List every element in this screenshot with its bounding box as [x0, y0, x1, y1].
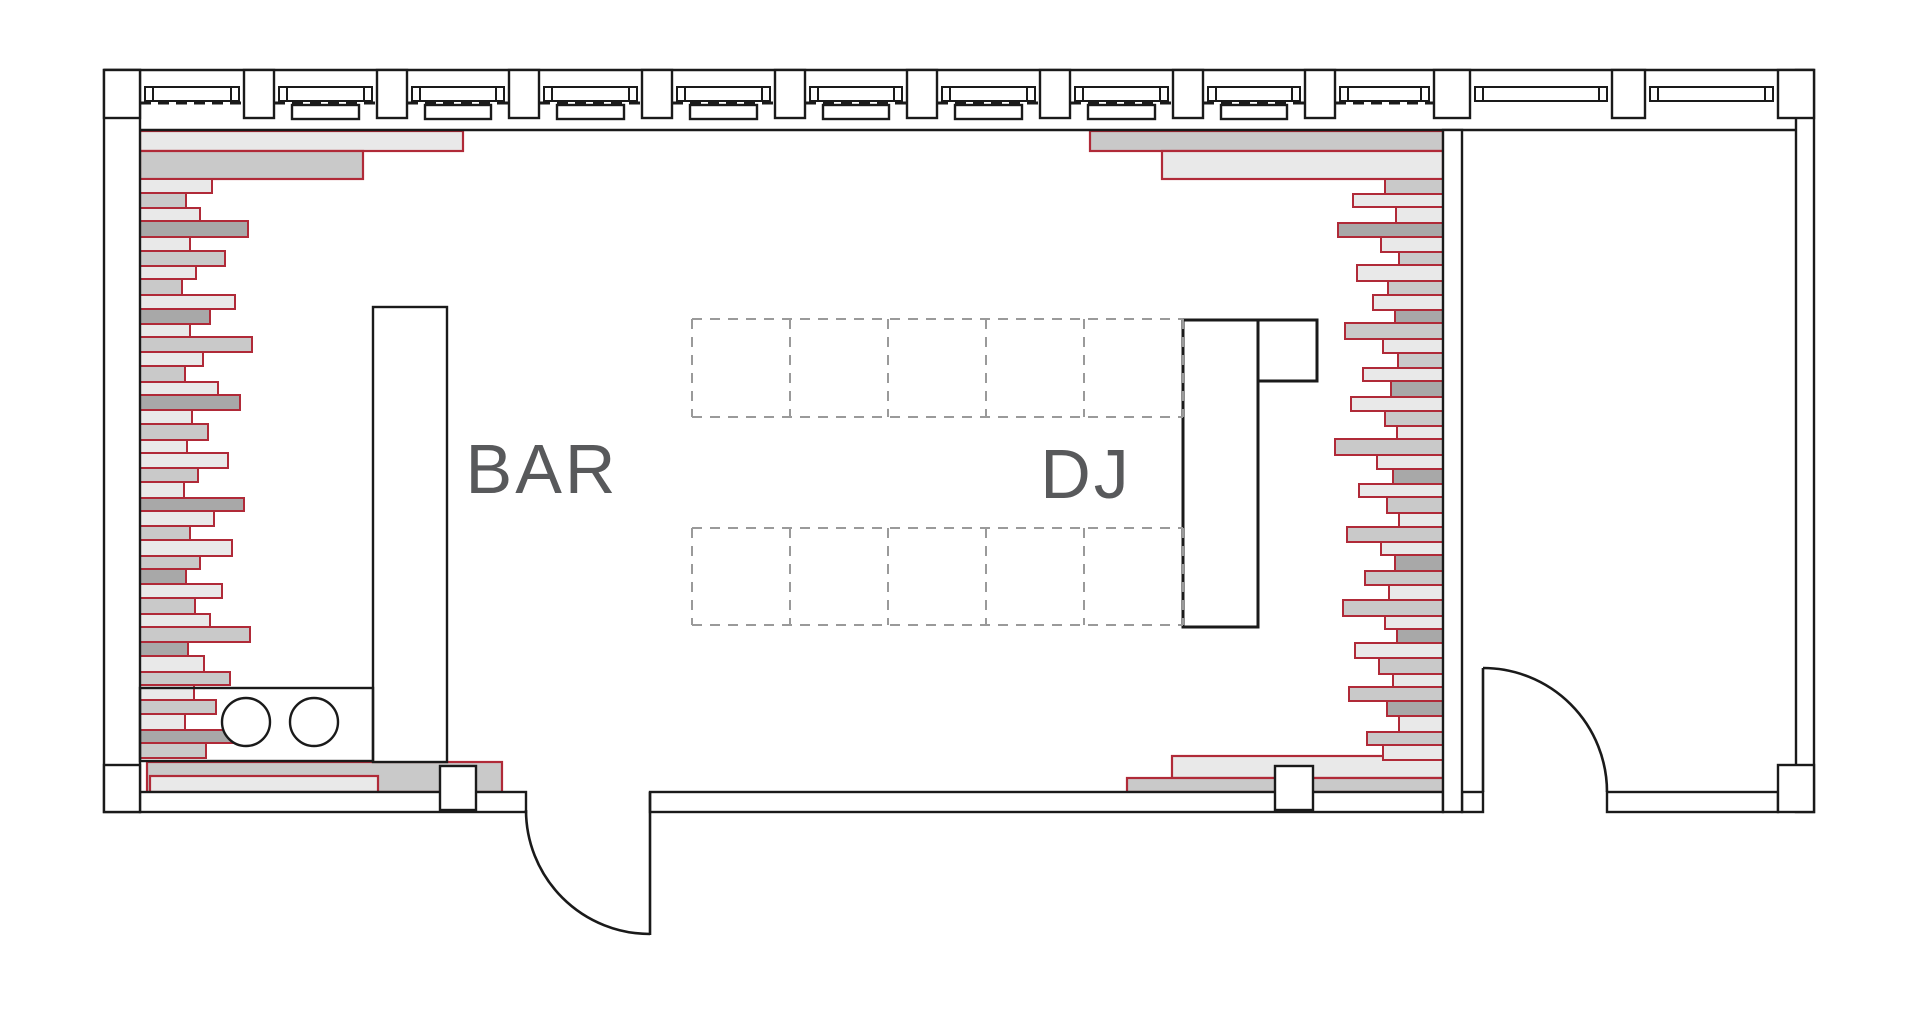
right-wall-panel-strip [1357, 265, 1443, 281]
right-wall-panel-strip [1347, 527, 1443, 542]
left-wall-panel-strip [140, 352, 203, 366]
right-wall-panel-strip [1385, 411, 1443, 426]
left-wall-panel-strip [140, 598, 195, 614]
left-wall-panel-strip [140, 221, 248, 237]
radiator [1088, 105, 1155, 119]
left-wall-panel-strip [140, 179, 212, 193]
right-wall-panel-strip [1379, 658, 1443, 674]
left-wall-panel-strip [140, 714, 185, 730]
left-wall-panel-strip [140, 556, 200, 569]
right-wall-panel-strip [1388, 281, 1443, 295]
panel-slab [140, 151, 363, 179]
sink-basin [290, 698, 338, 746]
left-wall-panel-strip [140, 584, 222, 598]
right-wall-panel-strip [1373, 295, 1443, 310]
window-frame [412, 87, 504, 101]
left-wall-panel-strip [140, 468, 198, 482]
left-wall-panel-strip [140, 237, 190, 251]
sink-basin [222, 698, 270, 746]
left-wall-panel-strip [140, 208, 200, 221]
left-wall-panel-strip [140, 453, 228, 468]
furniture [140, 307, 1317, 762]
bottom-wall-segment [1607, 792, 1778, 812]
left-wall-panel-strip [140, 395, 240, 410]
corner-column [104, 765, 140, 812]
left-wall-panel-strip [140, 627, 250, 642]
left-wall [104, 70, 140, 812]
right-wall-panel-strip [1395, 310, 1443, 323]
left-wall-panel-strip [140, 642, 188, 656]
back-room-door-swing-arc [1483, 668, 1607, 792]
right-wall-panel-strip [1335, 439, 1443, 455]
right-wall [1796, 70, 1814, 812]
right-wall-panel-strip [1351, 397, 1443, 411]
right-wall-panel-strip [1353, 194, 1443, 207]
left-wall-panel-strip [140, 656, 204, 672]
pilaster-column [642, 70, 672, 118]
right-wall-panel-strip [1383, 745, 1443, 760]
window-frame [1208, 87, 1300, 101]
floor-plan-canvas: BARDJ [0, 0, 1920, 1010]
right-wall-panel-strip [1399, 513, 1443, 527]
right-wall-panel-strip [1381, 237, 1443, 252]
radiator [425, 105, 491, 119]
window-frame [1075, 87, 1168, 101]
right-wall-panel-strip [1393, 674, 1443, 687]
panel-slab [1162, 151, 1443, 179]
right-wall-panel-strip [1387, 497, 1443, 513]
right-wall-panel-strip [1385, 179, 1443, 194]
left-wall-panel-strip [140, 614, 210, 627]
left-wall-panel-strip [140, 251, 225, 266]
window-frame [1475, 87, 1607, 101]
bar-label: BAR [466, 430, 619, 508]
left-wall-panel-strip [140, 540, 232, 556]
pilaster-column [775, 70, 805, 118]
corner-column [1778, 765, 1814, 812]
dj-booth-extension [1258, 320, 1317, 381]
panel-slab [1090, 131, 1443, 151]
left-wall-panel-strip [140, 700, 216, 714]
dj-label: DJ [1040, 435, 1132, 513]
bottom-wall-segment [650, 792, 1443, 812]
right-wall-panel-strip [1389, 585, 1443, 600]
left-wall-panel-strip [140, 440, 187, 453]
right-wall-panel-strip [1381, 542, 1443, 555]
floor-plan-drawing: BARDJ [0, 0, 1920, 1010]
window-frame [810, 87, 902, 101]
left-wall-panel-strip [140, 410, 192, 424]
right-wall-panel-strip [1349, 687, 1443, 701]
right-wall-panel-strip [1343, 600, 1443, 616]
dj-booth [1183, 320, 1258, 627]
left-wall-panel-strip [140, 324, 190, 337]
panel-slab [150, 776, 378, 792]
window-frame [279, 87, 372, 101]
right-wall-panel-strip [1397, 426, 1443, 439]
corner-column [104, 70, 140, 118]
right-wall-panel-strip [1395, 555, 1443, 571]
main-entrance-door-swing-arc [526, 810, 650, 934]
right-wall-panel-strip [1359, 484, 1443, 497]
radiator [955, 105, 1022, 119]
right-wall-panel-strip [1393, 469, 1443, 484]
left-wall-panel-strip [140, 672, 230, 685]
radiator [292, 105, 359, 119]
left-wall-panel-strip [140, 482, 184, 498]
right-wall-panel-strip [1398, 353, 1443, 368]
right-wall-panel-strip [1345, 323, 1443, 339]
pilaster-column [1434, 70, 1470, 118]
left-wall-panel-strip [140, 295, 235, 309]
right-wall-panel-strip [1387, 701, 1443, 716]
walls [104, 70, 1814, 812]
right-wall-panel-strip [1365, 571, 1443, 585]
right-wall-panel-strip [1383, 339, 1443, 353]
right-wall-panel-strip [1338, 223, 1443, 237]
left-wall-panel-strip [140, 743, 206, 758]
pilaster-column [244, 70, 274, 118]
right-wall-panel-strip [1367, 732, 1443, 745]
right-wall-panel-strip [1355, 643, 1443, 658]
pilaster-column [1275, 766, 1313, 810]
window-frame [544, 87, 637, 101]
left-wall-panel-strip [140, 569, 186, 584]
right-wall-panel-strip [1363, 368, 1443, 381]
pilaster-column [440, 766, 476, 810]
pilaster-column [1173, 70, 1203, 118]
radiator [690, 105, 757, 119]
left-wall-panel-strip [140, 366, 185, 382]
left-wall-panel-strip [140, 337, 252, 352]
bottom-wall-segment [1462, 792, 1483, 812]
left-wall-panel-strip [140, 526, 190, 540]
right-wall-panel-strip [1396, 207, 1443, 223]
left-wall-panel-strip [140, 193, 186, 208]
radiator [1221, 105, 1287, 119]
panel-slab [140, 131, 463, 151]
room-labels: BARDJ [466, 430, 1132, 513]
right-wall-panel-strip [1391, 381, 1443, 397]
pilaster-column [509, 70, 539, 118]
window-frame [145, 87, 239, 101]
right-wall-panel-strip [1377, 455, 1443, 469]
window-frame [677, 87, 770, 101]
left-wall-panel-strip [140, 511, 214, 526]
right-wall-panel-strip [1399, 252, 1443, 265]
pilaster-column [1040, 70, 1070, 118]
left-wall-panel-strip [140, 309, 210, 324]
right-wall-panel-strip [1397, 629, 1443, 643]
pilaster-column [1305, 70, 1335, 118]
pilasters [104, 70, 1814, 812]
right-wall-panel-strip [1399, 716, 1443, 732]
window-frame [1340, 87, 1429, 101]
radiator [557, 105, 624, 119]
right-wall-panel-strip [1385, 616, 1443, 629]
left-wall-panel-strip [140, 730, 236, 743]
window-frame [1650, 87, 1773, 101]
pilaster-column [907, 70, 937, 118]
radiator [823, 105, 889, 119]
left-wall-panel-strip [140, 424, 208, 440]
partition-wall [1443, 130, 1462, 812]
left-wall-panel-strip [140, 266, 196, 279]
left-wall-panel-strip [140, 498, 244, 511]
corner-column [1778, 70, 1814, 118]
left-wall-panel-strip [140, 382, 218, 395]
pilaster-column [1612, 70, 1645, 118]
left-wall-panel-strip [140, 279, 182, 295]
bar-counter [373, 307, 447, 762]
window-frame [942, 87, 1035, 101]
pilaster-column [377, 70, 407, 118]
